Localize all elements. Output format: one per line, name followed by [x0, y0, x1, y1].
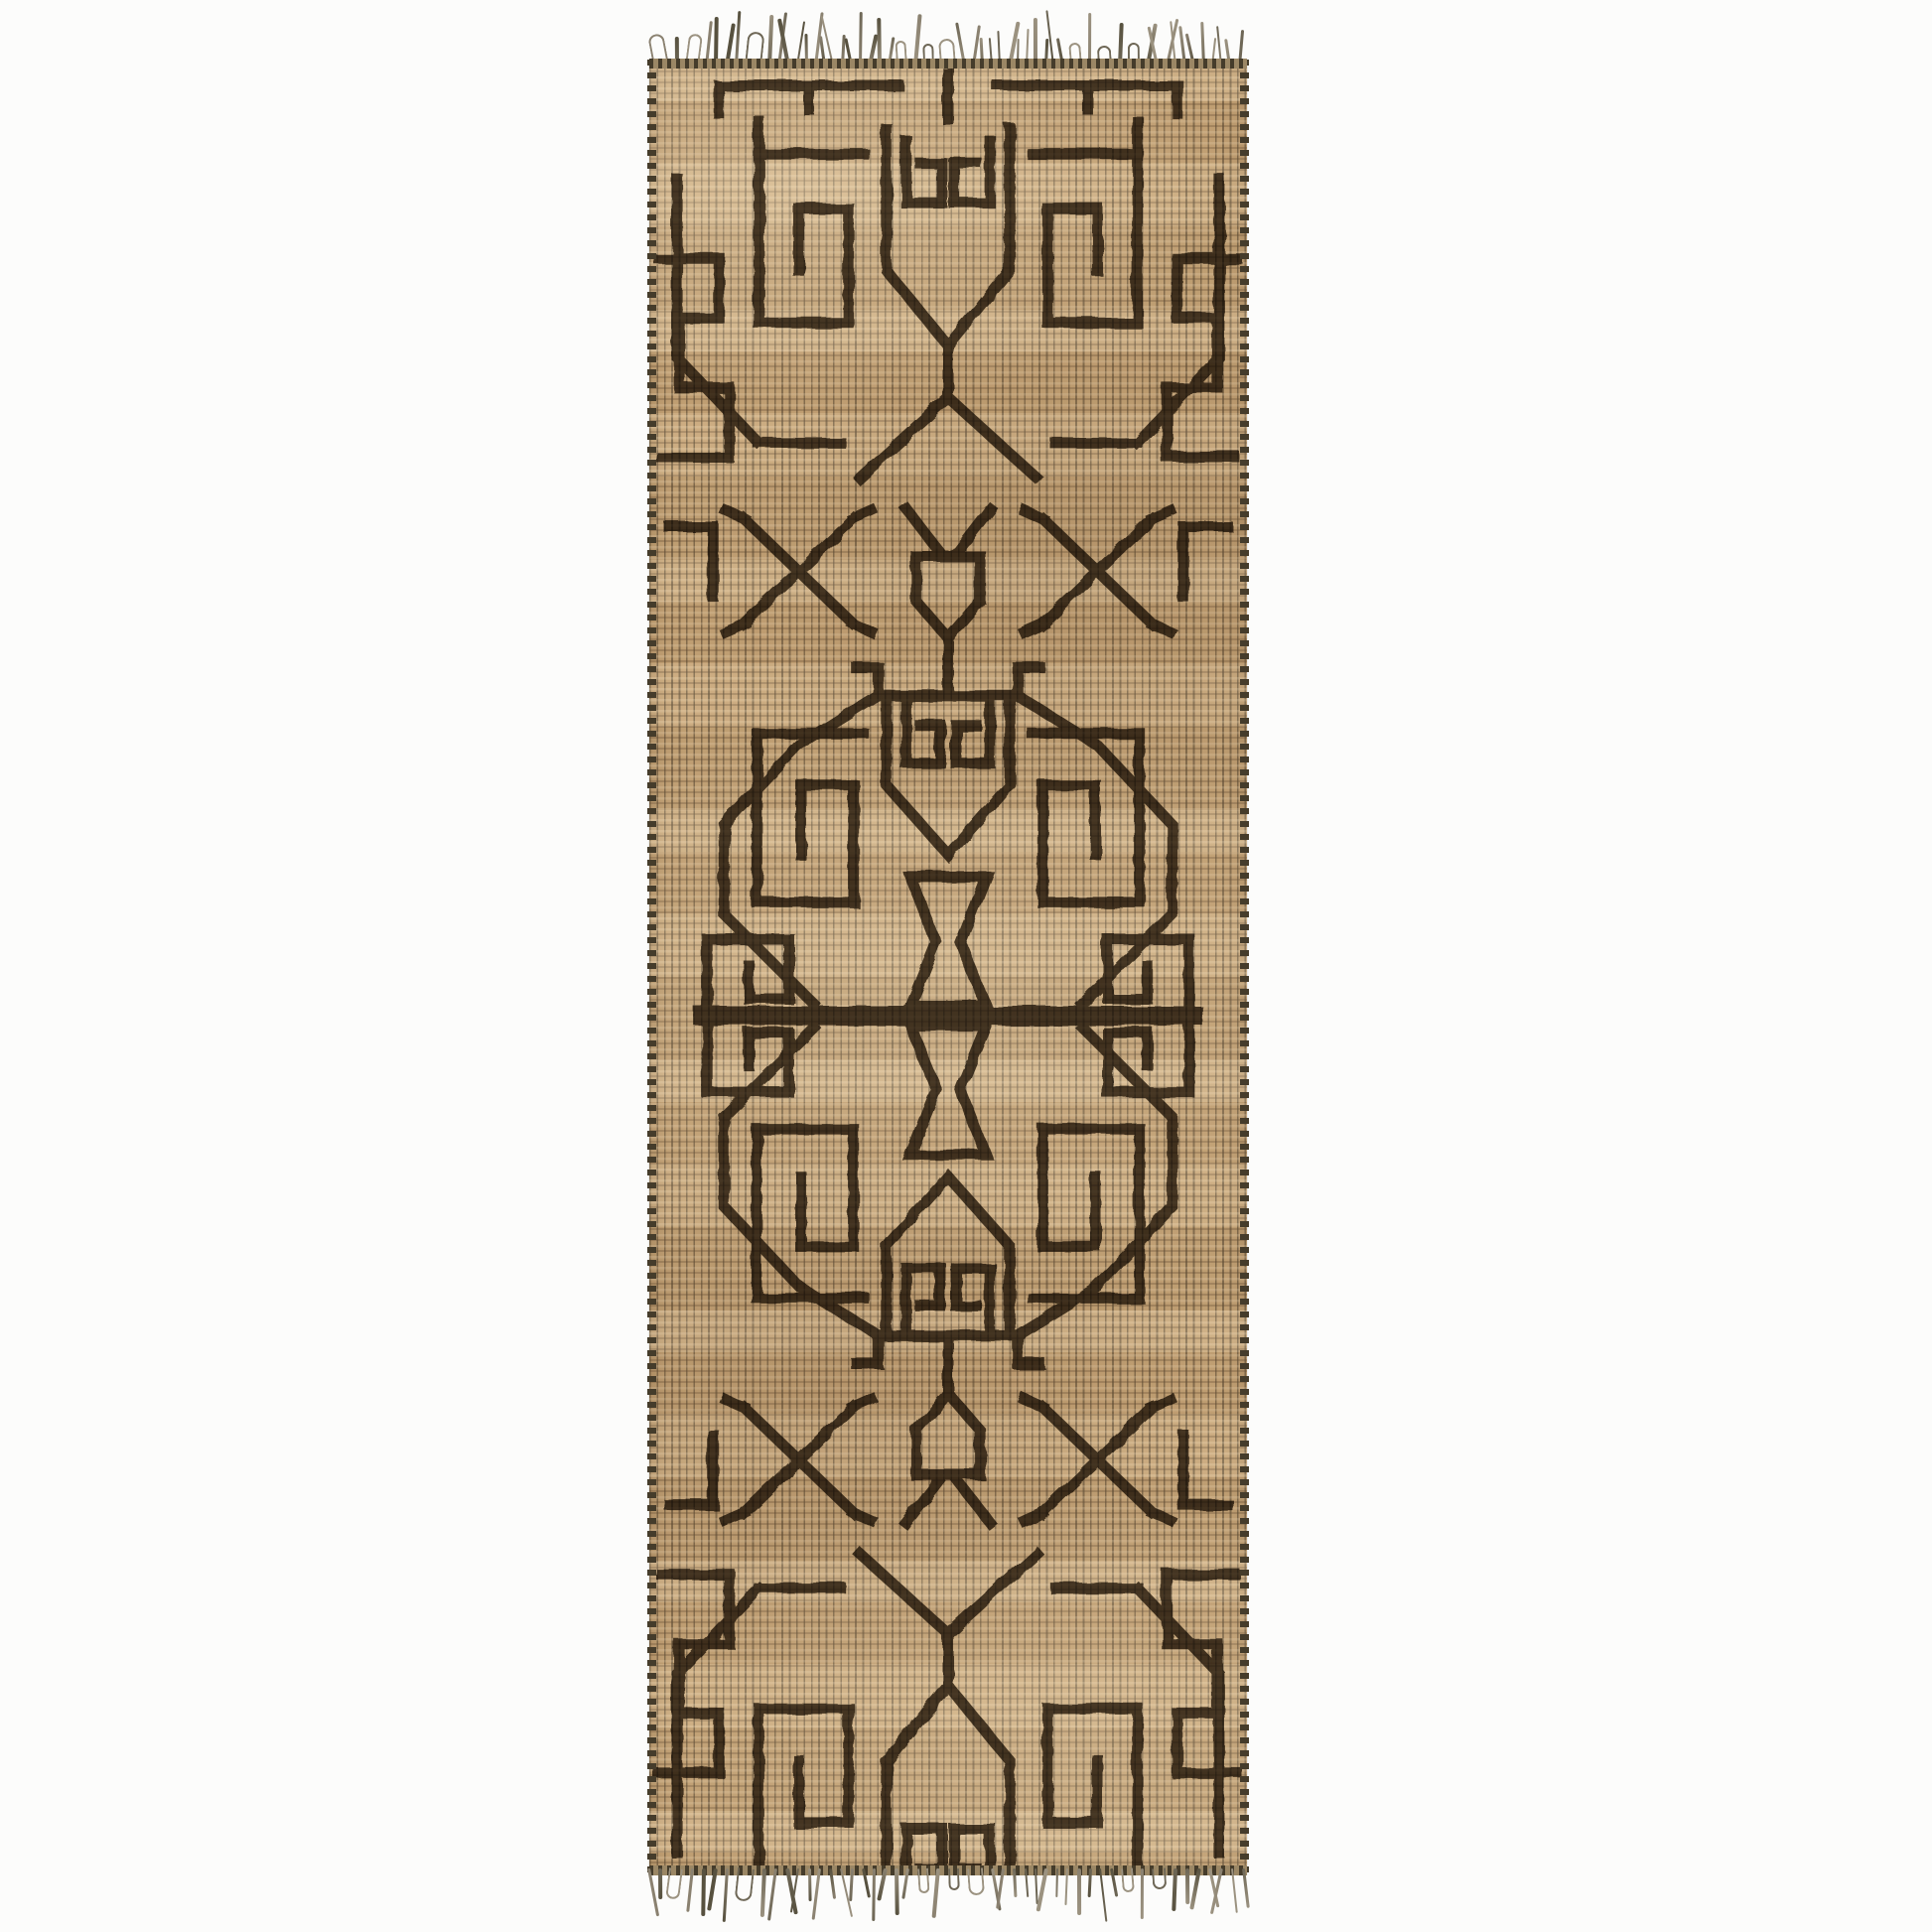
fringe-strand [701, 1868, 706, 1916]
fringe-loop [665, 1867, 683, 1900]
fringe-strand [735, 11, 742, 66]
fringe-strand [687, 1868, 694, 1912]
fringe-strand [862, 1868, 871, 1898]
fringe-strand [901, 1868, 908, 1899]
jute-runner-rug [649, 60, 1247, 1874]
fringe-strand [849, 1868, 853, 1901]
fringe-strand [1077, 1868, 1081, 1915]
pattern-bottom-half [659, 1020, 1237, 1874]
fringe-strand [1025, 1868, 1029, 1897]
fringe-strand [1172, 1868, 1177, 1911]
selvedge-right [1240, 60, 1249, 1874]
edge-binding-top [649, 59, 1247, 69]
fringe-strand [895, 1868, 898, 1915]
fringe-strand [1036, 1868, 1048, 1912]
fringe-strand [760, 1868, 766, 1917]
fringe-loop [1152, 1868, 1167, 1890]
fringe-loop [1121, 1868, 1135, 1893]
fringe-strand [767, 1868, 777, 1921]
fringe-strand [1065, 1868, 1069, 1905]
fringe-strand [812, 1868, 821, 1920]
fringe-strand [647, 1868, 659, 1917]
fringe-strand [877, 1868, 887, 1901]
fringe-loop [967, 1867, 985, 1895]
fringe-strand [1099, 1868, 1108, 1922]
fringe-strand [723, 1868, 730, 1922]
fringe-strand [1185, 1868, 1189, 1904]
fringe-loop [948, 1868, 960, 1890]
fringe-loop [917, 1868, 930, 1894]
fringe-strand [1013, 1868, 1018, 1897]
fringe-strand [658, 1868, 662, 1899]
fringe-strand [1140, 1868, 1143, 1919]
fringe-strand [859, 12, 862, 66]
fringe-bottom [647, 1868, 1245, 1926]
product-photo [0, 0, 1932, 1932]
pattern-top-half [659, 73, 1237, 1012]
fringe-strand [931, 1868, 939, 1918]
fringe-strand [808, 1868, 811, 1901]
fringe-strand [1231, 1868, 1238, 1913]
selvedge-left [647, 60, 656, 1874]
fringe-strand [1087, 1868, 1091, 1897]
fringe-loop [735, 1867, 755, 1902]
fringe-strand [829, 1868, 836, 1899]
fringe-strand [1110, 1868, 1118, 1897]
fringe-strand [1189, 1868, 1200, 1910]
rug-pattern-overlay [649, 60, 1247, 1874]
fringe-top [653, 8, 1241, 66]
fringe-strand [872, 1868, 875, 1921]
fringe-strand [707, 1868, 718, 1911]
fringe-strand [1055, 1868, 1058, 1897]
